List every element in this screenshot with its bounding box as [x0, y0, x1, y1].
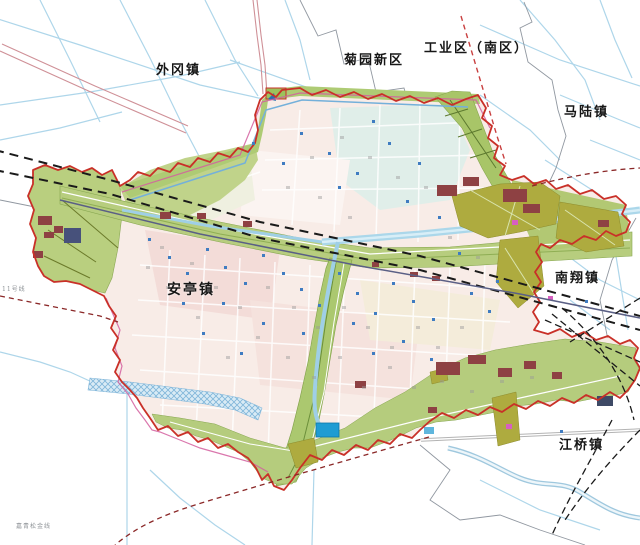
label-waigang-town: 外冈镇	[156, 59, 201, 78]
label-rail-line-southwest: 嘉青松金线	[16, 521, 51, 530]
label-jiangqiao-town: 江桥镇	[559, 434, 604, 453]
label-nanxiang-town: 南翔镇	[555, 267, 600, 286]
meander-river	[448, 448, 640, 518]
pink-highway-lines	[0, 0, 267, 133]
planning-map-canvas: 外冈镇 菊园新区 工业区（南区） 马陆镇 南翔镇 安亭镇 江桥镇 嘉青松金线 1…	[0, 0, 640, 545]
label-anting-town: 安亭镇	[167, 279, 215, 299]
label-industrial-zone-south: 工业区（南区）	[424, 37, 529, 56]
gray-road	[421, 430, 640, 440]
blue-water-parcel	[316, 423, 339, 437]
west-line	[0, 296, 118, 322]
label-malu-town: 马陆镇	[564, 101, 609, 120]
planning-map	[0, 0, 640, 545]
label-juyuan-new-area: 菊园新区	[344, 49, 404, 68]
label-rail-line-west: 11号线	[2, 284, 26, 293]
